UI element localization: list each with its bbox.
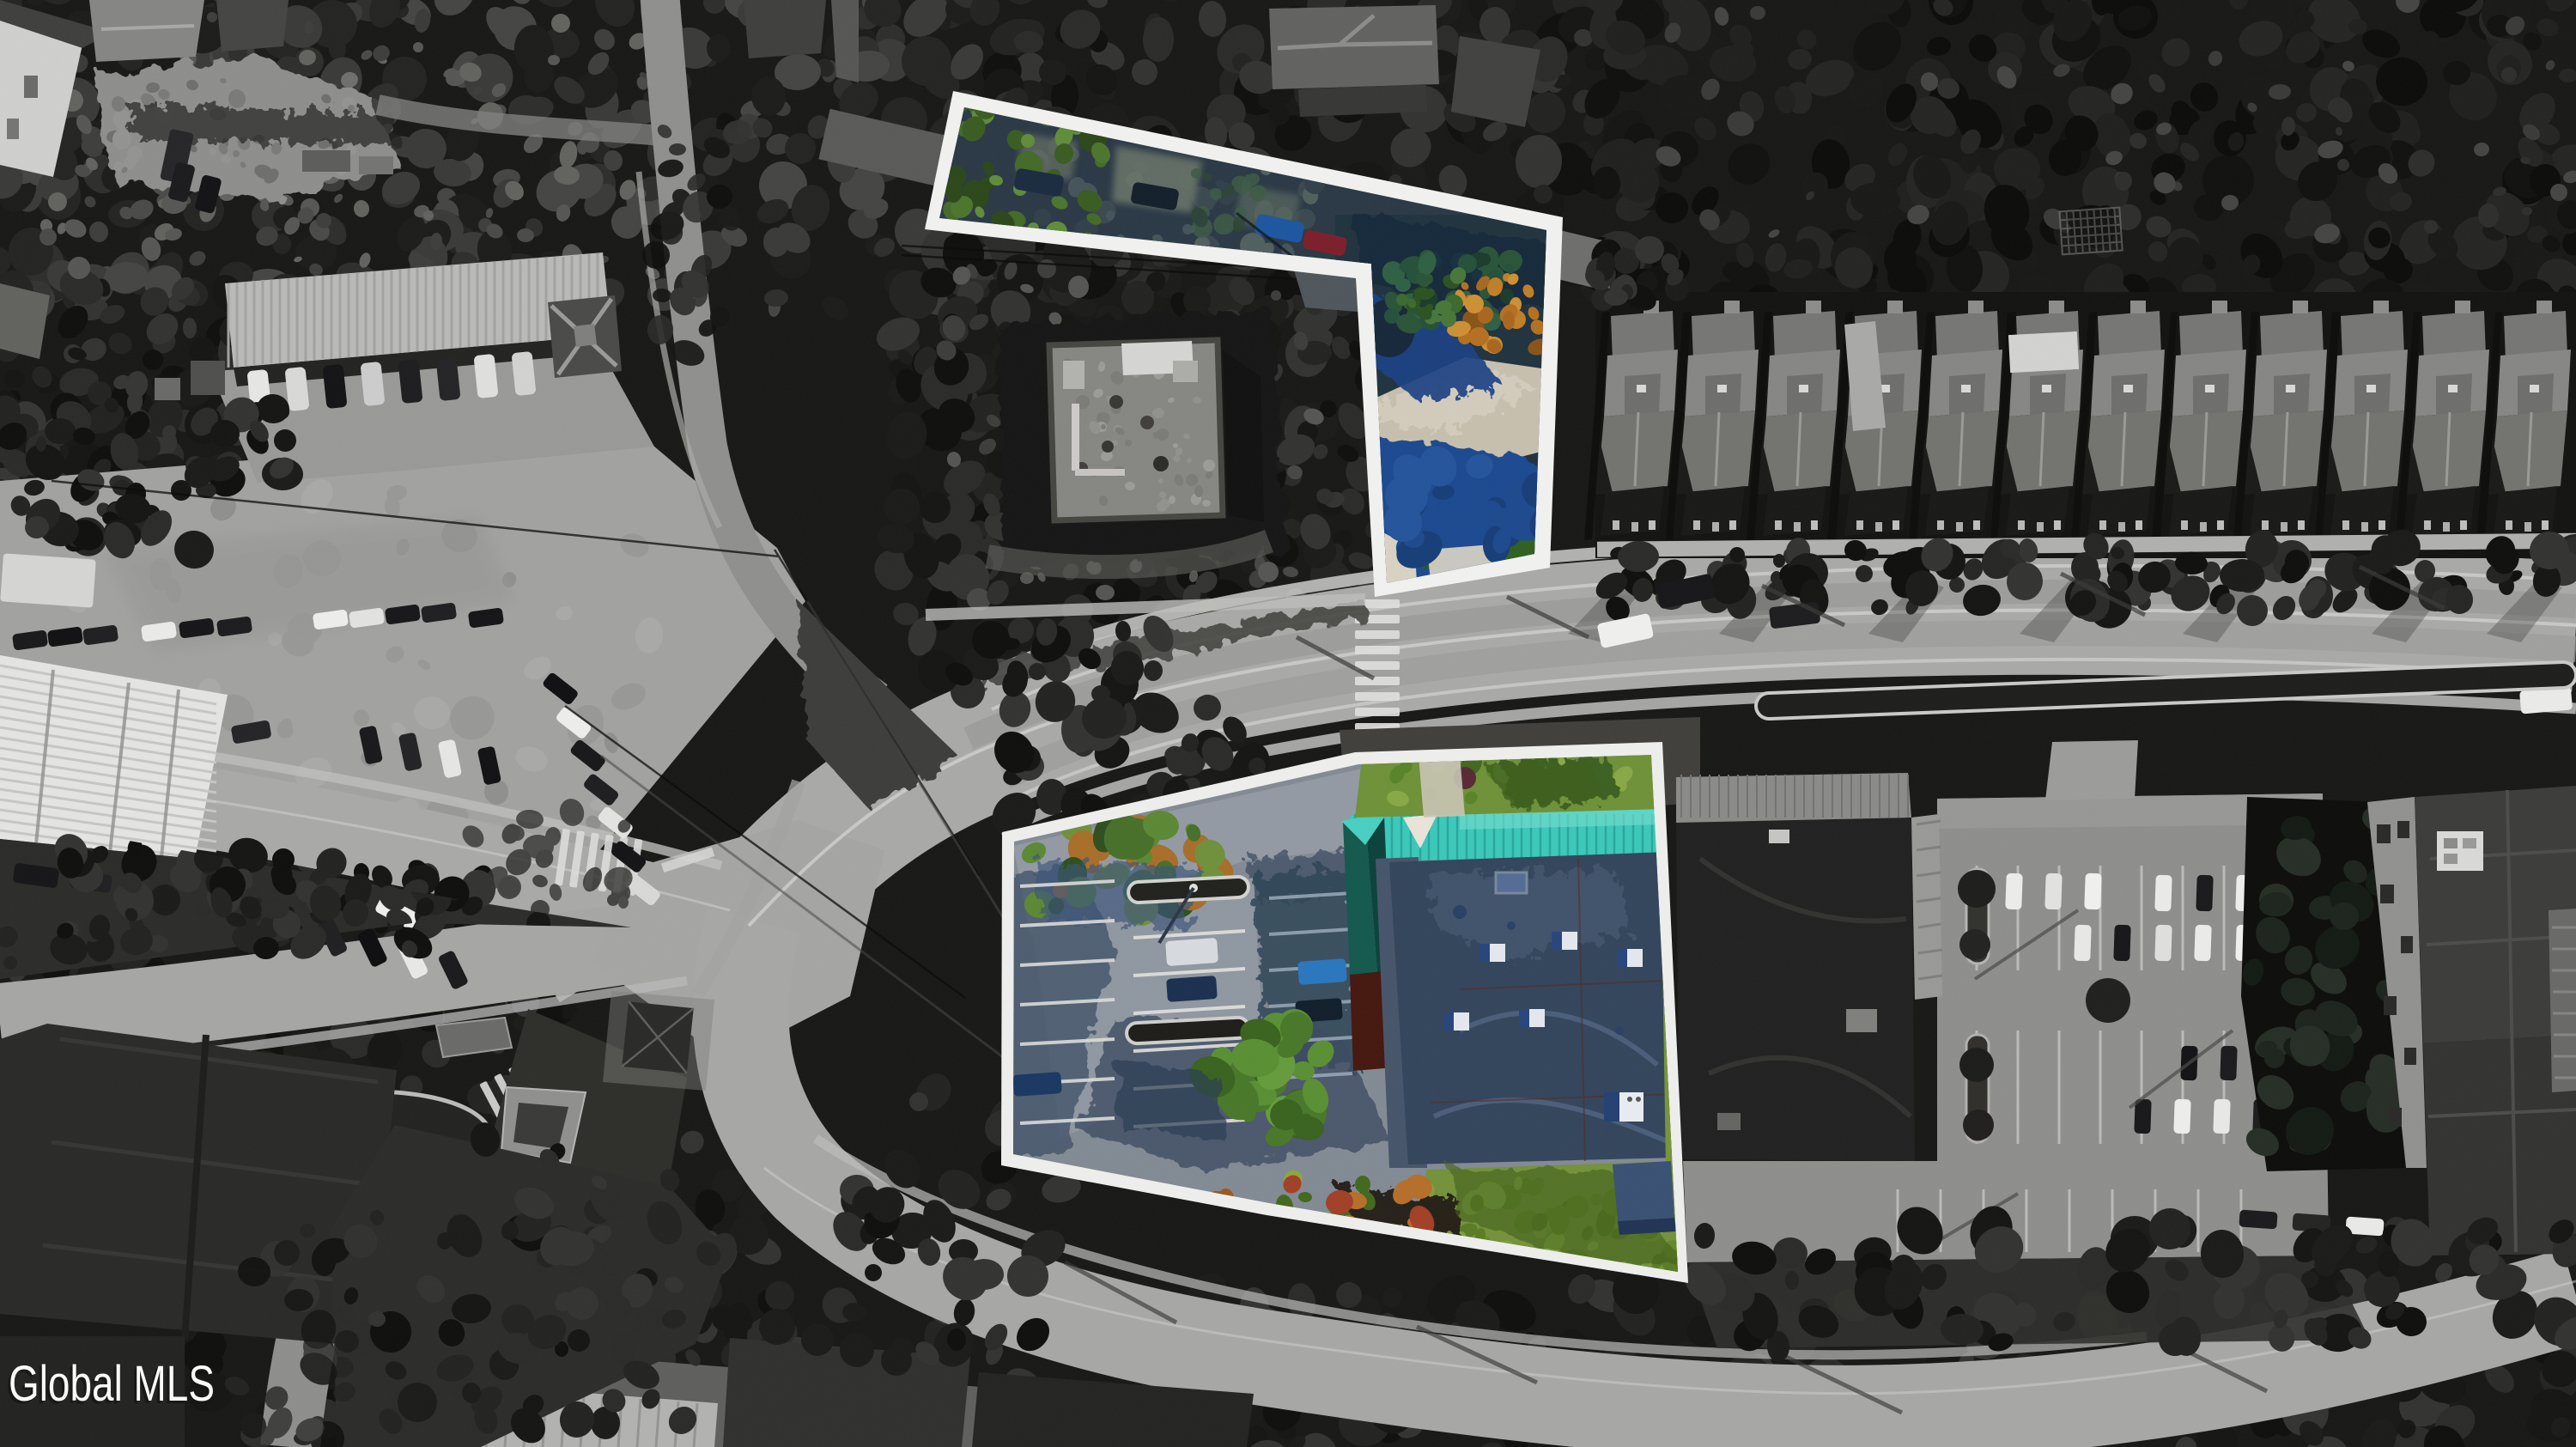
svg-text:Global MLS: Global MLS [9, 1356, 215, 1412]
